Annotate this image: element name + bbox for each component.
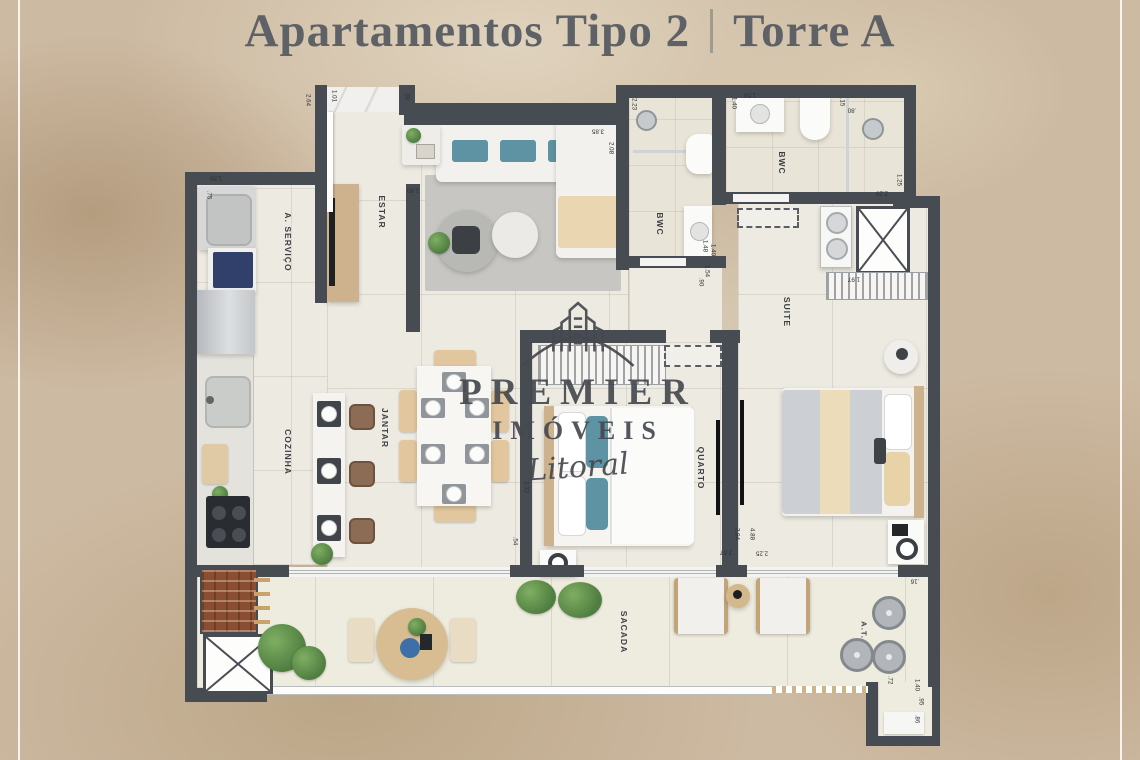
brand-watermark: PREMIER IMÓVEIS Litoral bbox=[448, 298, 708, 485]
dimension-label: 2.57 bbox=[720, 549, 732, 556]
wall bbox=[404, 103, 628, 125]
room-label-jantar: JANTAR bbox=[379, 408, 388, 448]
wall bbox=[616, 85, 916, 98]
plant bbox=[406, 128, 421, 143]
dimension-label: .30 bbox=[404, 92, 411, 101]
dimension-label: 1.50 bbox=[210, 175, 222, 182]
wall bbox=[616, 85, 629, 270]
dimension-label: 2.64 bbox=[305, 94, 312, 106]
washbasin bbox=[750, 104, 770, 124]
lounge-chair bbox=[674, 578, 728, 634]
balcony-glass-door bbox=[289, 567, 510, 577]
dimension-label: .80 bbox=[848, 107, 857, 114]
balcony-chair bbox=[348, 618, 374, 662]
poster-title: Apartamentos Tipo 2 Torre A bbox=[0, 0, 1140, 62]
blue-plate bbox=[400, 638, 420, 658]
room-label-suite: SUITE bbox=[781, 297, 790, 327]
faucet bbox=[206, 396, 214, 404]
room-label-area-tecnica: A.T. bbox=[860, 621, 869, 639]
skewer bbox=[254, 606, 270, 610]
dimension-label: .75 bbox=[206, 191, 213, 200]
ac-outline bbox=[737, 208, 799, 228]
dimension-label: 1.01 bbox=[331, 90, 338, 102]
bar-stool bbox=[349, 518, 375, 544]
plate bbox=[425, 400, 441, 416]
placemat bbox=[421, 444, 445, 464]
sliding-door-panel bbox=[716, 420, 720, 515]
room-label-servico: A. SERVIÇO bbox=[282, 212, 291, 271]
dining-chair bbox=[399, 390, 417, 432]
bar-stool bbox=[349, 404, 375, 430]
ac-unit bbox=[872, 640, 906, 674]
wall bbox=[406, 184, 420, 332]
entry-door-leaf bbox=[327, 112, 333, 212]
chaise-throw bbox=[558, 196, 620, 248]
dimension-label: 1.40 bbox=[914, 679, 921, 691]
wall bbox=[510, 565, 584, 577]
sofa-cushion bbox=[500, 140, 536, 162]
room-label-cozinha: COZINHA bbox=[282, 429, 291, 475]
room-label-estar: ESTAR bbox=[376, 195, 385, 228]
mug bbox=[733, 590, 742, 599]
plate bbox=[321, 463, 337, 479]
plate bbox=[321, 520, 337, 536]
dimension-label: 1.25 bbox=[896, 174, 903, 186]
duct-shaft bbox=[856, 206, 910, 274]
plant bbox=[428, 232, 450, 254]
room-label-sacada: SACADA bbox=[618, 611, 627, 653]
dining-chair bbox=[434, 504, 476, 522]
brand-type: IMÓVEIS bbox=[448, 416, 708, 446]
placemat bbox=[317, 401, 341, 427]
dimension-label: .16 bbox=[911, 578, 920, 585]
dimension-label: 1.50 bbox=[744, 92, 756, 99]
plant bbox=[558, 582, 602, 618]
dimension-label: 1.60 bbox=[407, 187, 419, 194]
dimension-label: 2.08 bbox=[608, 142, 615, 154]
skewer bbox=[254, 592, 270, 596]
room-label-bwc-suite: BWC bbox=[776, 151, 785, 174]
laundry-basket bbox=[213, 252, 253, 288]
rolled-towel bbox=[826, 238, 848, 260]
wall bbox=[928, 200, 940, 580]
pillow bbox=[884, 394, 912, 450]
brand-name: PREMIER bbox=[448, 371, 708, 414]
dimension-label: 1.40 bbox=[731, 97, 738, 109]
wall bbox=[712, 85, 726, 205]
burner bbox=[212, 528, 226, 542]
title-right: Torre A bbox=[733, 4, 895, 58]
brand-building-icon bbox=[503, 298, 653, 370]
dimension-label: 1.54 bbox=[704, 265, 711, 277]
dimension-label: .15 bbox=[839, 98, 846, 107]
dimension-label: .90 bbox=[698, 278, 705, 287]
plant bbox=[516, 580, 556, 614]
book-decor bbox=[416, 144, 435, 159]
plant bbox=[292, 646, 326, 680]
floorplan-poster: Apartamentos Tipo 2 Torre A bbox=[0, 0, 1140, 760]
shower-head bbox=[636, 110, 657, 131]
title-divider bbox=[710, 9, 713, 53]
dimension-label: 2.20 bbox=[876, 190, 888, 197]
balcony-glass-door bbox=[747, 567, 898, 577]
bar-stool bbox=[349, 461, 375, 487]
dining-chair bbox=[399, 440, 417, 482]
placemat bbox=[317, 515, 341, 541]
dimension-label: .86 bbox=[914, 715, 921, 724]
frame-line-right bbox=[1120, 0, 1122, 760]
barbecue-grill bbox=[200, 568, 258, 634]
wall bbox=[898, 565, 940, 577]
wall bbox=[716, 565, 747, 577]
entry-marble bbox=[327, 87, 403, 112]
burner bbox=[232, 506, 246, 520]
plant bbox=[311, 543, 333, 565]
dimension-label: 2.23 bbox=[631, 98, 638, 110]
dimension-label: 2.94 bbox=[734, 528, 741, 540]
dimension-label: 1.40 bbox=[710, 244, 717, 256]
shower-head bbox=[862, 118, 884, 140]
cutting-board bbox=[202, 444, 228, 484]
lamp bbox=[896, 538, 918, 560]
decor-item bbox=[896, 348, 908, 360]
balcony-chair bbox=[450, 618, 476, 662]
skewer bbox=[254, 620, 270, 624]
pillow-beige bbox=[884, 452, 910, 506]
balcony-glass-door bbox=[584, 567, 716, 577]
toilet bbox=[800, 96, 830, 140]
lounge-chair bbox=[756, 578, 810, 634]
burner bbox=[212, 506, 226, 520]
suite-headboard bbox=[914, 386, 924, 518]
decor-item bbox=[892, 524, 908, 536]
ac-unit bbox=[872, 596, 906, 630]
toilet bbox=[686, 134, 712, 174]
burner bbox=[232, 528, 246, 542]
ac-unit bbox=[840, 638, 874, 672]
plate bbox=[321, 406, 337, 422]
wall bbox=[315, 85, 327, 303]
room-label-bwc-social: BWC bbox=[654, 212, 663, 235]
skewer bbox=[254, 578, 270, 582]
glass-railing bbox=[267, 686, 772, 695]
sliding-door-panel bbox=[740, 400, 744, 505]
wall bbox=[866, 736, 940, 746]
railing-dotted bbox=[772, 686, 868, 693]
suite-closet bbox=[826, 272, 928, 300]
placemat bbox=[421, 398, 445, 418]
wall bbox=[185, 172, 327, 185]
wall bbox=[928, 577, 940, 687]
pillow-teal bbox=[586, 478, 608, 530]
rolled-towel bbox=[826, 212, 848, 234]
wall bbox=[904, 85, 916, 205]
placemat bbox=[317, 458, 341, 484]
dimension-label: 1.97 bbox=[848, 276, 860, 283]
decor-item bbox=[420, 634, 432, 650]
dimension-label: 3.85 bbox=[592, 128, 604, 135]
dimension-label: 1.48 bbox=[702, 240, 709, 252]
plate bbox=[425, 446, 441, 462]
dimension-label: .72 bbox=[887, 676, 894, 685]
laundry-tub-basin bbox=[206, 194, 252, 246]
wall bbox=[932, 682, 940, 744]
washbasin bbox=[690, 222, 709, 241]
coffee-table-tray bbox=[452, 226, 480, 254]
dimension-label: .54 bbox=[512, 537, 519, 546]
frame-line-left bbox=[18, 0, 20, 760]
coffee-table-small bbox=[492, 212, 538, 258]
dimension-label: 4.88 bbox=[749, 528, 756, 540]
dimension-label: .95 bbox=[918, 697, 925, 706]
door-threshold bbox=[733, 194, 789, 202]
accent-pillow bbox=[874, 438, 886, 464]
suite-throw bbox=[820, 390, 850, 514]
dimension-label: 2.25 bbox=[756, 550, 768, 557]
title-left: Apartamentos Tipo 2 bbox=[245, 4, 691, 58]
door-threshold bbox=[640, 258, 686, 266]
fridge bbox=[197, 290, 255, 354]
wall bbox=[185, 172, 197, 702]
sofa-cushion bbox=[452, 140, 488, 162]
